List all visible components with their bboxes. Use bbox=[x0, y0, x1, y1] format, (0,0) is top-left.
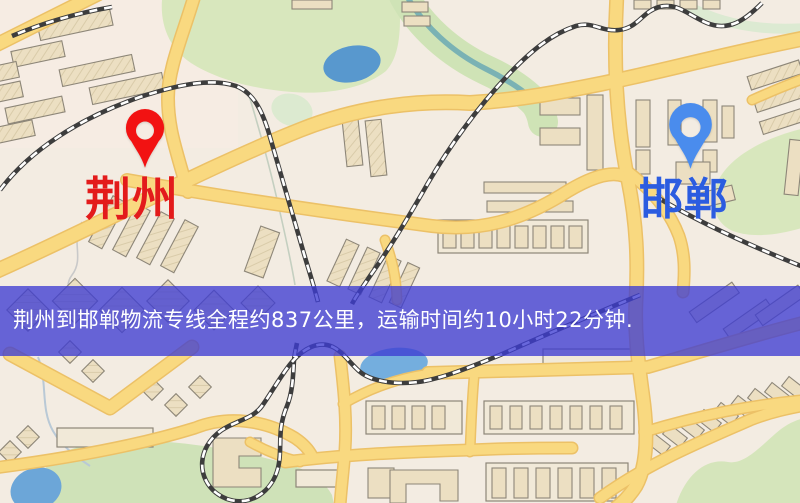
destination-city-label: 邯郸 bbox=[639, 178, 729, 222]
origin-city-label: 荆州 bbox=[85, 176, 179, 222]
origin-pin-icon[interactable] bbox=[124, 107, 166, 169]
map-screenshot: 荆州 邯郸 荆州到邯郸物流专线全程约837公里，运输时间约10小时22分钟. bbox=[0, 0, 800, 503]
destination-pin-icon[interactable] bbox=[667, 102, 714, 169]
route-info-text: 荆州到邯郸物流专线全程约837公里，运输时间约10小时22分钟. bbox=[13, 308, 633, 333]
map-canvas[interactable] bbox=[0, 0, 800, 503]
route-info-banner: 荆州到邯郸物流专线全程约837公里，运输时间约10小时22分钟. bbox=[0, 286, 800, 356]
